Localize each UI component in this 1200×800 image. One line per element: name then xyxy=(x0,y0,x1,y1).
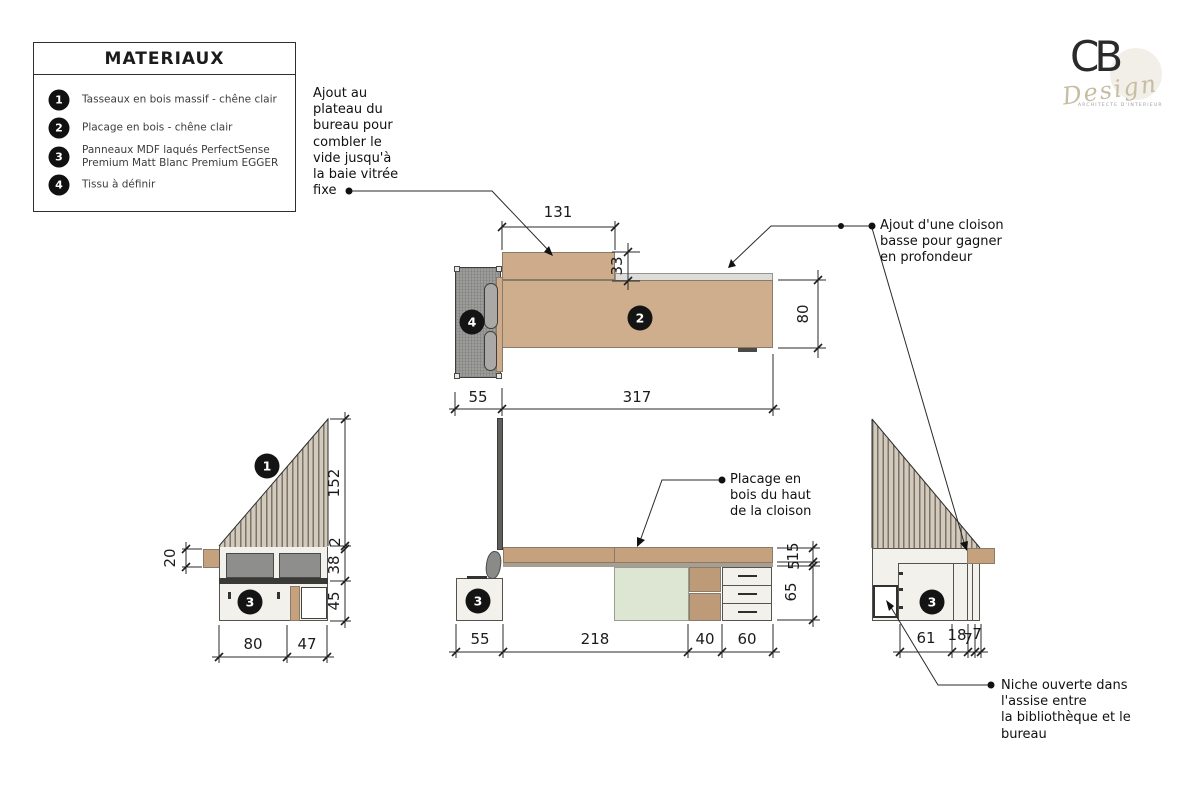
center-elev-chair-arm xyxy=(467,576,487,579)
left-elev-divider xyxy=(290,586,300,621)
legend-title: MATERIAUX xyxy=(34,43,295,75)
marker-center-cabinet: 3 xyxy=(466,589,491,614)
plan-desk-extension xyxy=(502,252,615,280)
center-elev-drawer-unit xyxy=(722,567,772,621)
material-4-label: Tissu à définir xyxy=(82,179,287,192)
drawer-divider xyxy=(723,585,771,586)
dim-center-height: 65 xyxy=(782,582,800,601)
note-desk-extension: Ajout au plateau du bureau pour combler … xyxy=(313,86,418,199)
drawer-handle xyxy=(738,575,757,577)
cabinet-divider xyxy=(967,564,968,620)
note-veneer: Placage en bois du haut de la cloison xyxy=(730,472,830,521)
left-elev-handle-2 xyxy=(277,592,280,599)
dim-right-w1: 61 xyxy=(916,629,935,647)
center-elev-partition-edge xyxy=(497,418,503,550)
dim-plan-depth: 80 xyxy=(794,304,812,323)
dim-right-w4: 7 xyxy=(972,625,982,643)
left-elev-handle-1 xyxy=(228,592,231,599)
dim-center-top: 15 xyxy=(784,542,802,561)
dim-center-strip: 5 xyxy=(785,560,803,570)
center-elev-wood-block-top xyxy=(689,567,721,592)
center-elev-desk-band xyxy=(503,547,773,563)
drawer-handle xyxy=(738,593,757,595)
marker-plan-desk: 2 xyxy=(628,306,653,331)
dim-plan-notch: 33 xyxy=(608,256,626,275)
right-elev-desk-return xyxy=(967,548,995,564)
left-elev-niche xyxy=(301,587,327,619)
cabinet-divider xyxy=(953,564,954,620)
center-elev-band-seam xyxy=(614,548,615,562)
plan-chair-cushion-top xyxy=(484,283,498,329)
hinge-mark xyxy=(899,606,903,609)
marker-plan-chair: 4 xyxy=(460,310,485,335)
plan-desk-notch xyxy=(738,348,757,352)
cb-design-logo: CB Design ARCHITECTE D'INTERIEUR xyxy=(1050,30,1190,115)
dim-center-chair: 55 xyxy=(470,630,489,648)
dim-left-w2: 47 xyxy=(297,635,316,653)
note-open-niche: Niche ouverte dans l'assise entre la bib… xyxy=(1001,678,1146,743)
dim-left-seat: 38 xyxy=(325,555,343,574)
dim-plan-chair: 55 xyxy=(468,388,487,406)
material-2-label: Placage en bois - chêne clair xyxy=(82,122,287,135)
right-elev-open-niche xyxy=(873,585,898,618)
hinge-mark xyxy=(899,588,903,591)
dim-center-drawers: 60 xyxy=(737,630,756,648)
dim-plan-length: 317 xyxy=(623,388,652,406)
dim-center-niche: 40 xyxy=(695,630,714,648)
drawing-canvas: MATERIAUX 1 Tasseaux en bois massif - ch… xyxy=(0,0,1200,800)
left-elev-wall-block xyxy=(203,549,220,568)
marker-right-cabinet: 3 xyxy=(920,590,945,615)
cabinet-divider xyxy=(972,564,973,620)
plan-chair-cushion-bottom xyxy=(484,331,497,371)
chair-foot xyxy=(454,266,460,272)
hinge-mark xyxy=(899,572,903,575)
material-4-badge: 4 xyxy=(49,175,70,196)
material-1-badge: 1 xyxy=(49,90,70,111)
drawer-divider xyxy=(723,603,771,604)
marker-left-slats: 1 xyxy=(255,454,280,479)
marker-left-cabinet: 3 xyxy=(238,590,263,615)
dim-left-slats: 152 xyxy=(325,469,343,498)
left-elev-slat-triangle xyxy=(219,419,328,547)
material-3-badge: 3 xyxy=(49,147,70,168)
materials-legend: MATERIAUX 1 Tasseaux en bois massif - ch… xyxy=(33,42,296,212)
dim-left-w1: 80 xyxy=(243,635,262,653)
note-low-partition: Ajout d'une cloison basse pour gagner en… xyxy=(880,218,1025,267)
chair-foot xyxy=(454,373,460,379)
logo-tagline: ARCHITECTE D'INTERIEUR xyxy=(1078,103,1163,108)
chair-foot xyxy=(496,373,502,379)
drawer-handle xyxy=(738,611,757,613)
material-1-label: Tasseaux en bois massif - chêne clair xyxy=(82,94,287,107)
dim-left-block: 20 xyxy=(161,548,179,567)
right-elev-slat-triangle xyxy=(872,419,980,548)
dim-left-base: 45 xyxy=(325,591,343,610)
center-elev-wood-block-bottom xyxy=(689,593,721,621)
left-elev-cushion-1 xyxy=(226,553,274,578)
material-2-badge: 2 xyxy=(49,118,70,139)
center-elev-green-panel xyxy=(614,567,689,621)
center-elev-chair-back xyxy=(484,550,503,580)
dim-center-span: 218 xyxy=(581,630,610,648)
material-3-label: Panneaux MDF laqués PerfectSense Premium… xyxy=(82,144,287,170)
logo-monogram: CB xyxy=(1070,32,1118,81)
dim-plan-ext-width: 131 xyxy=(544,203,573,221)
left-elev-seat-strip xyxy=(219,578,328,584)
dim-left-gap: 2 xyxy=(326,537,344,547)
left-elev-cushion-2 xyxy=(279,553,321,578)
